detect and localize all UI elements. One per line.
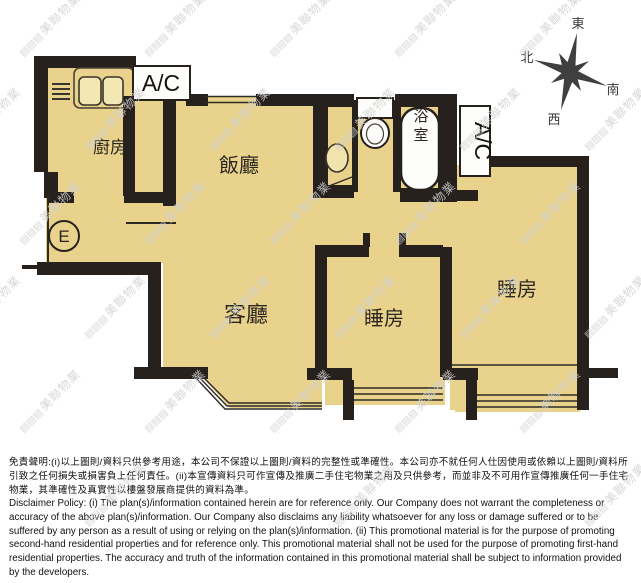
dining-room-label: 飯廳 — [219, 154, 259, 177]
compass-star — [534, 33, 607, 110]
compass-rose: 東 北 南 西 — [520, 16, 619, 127]
disclaimer-english: Disclaimer Policy: (i) The plan(s)/infor… — [9, 497, 633, 579]
kitchen-label: 廚房 — [93, 137, 127, 157]
flat-letter: E — [58, 227, 69, 246]
stove-burner — [79, 77, 101, 105]
disclaimer-block: 免責聲明:(i)以上圖則/資料只供參考用途，本公司不保證以上圖則/資料的完整性或… — [9, 456, 633, 580]
compass-north-label: 北 — [520, 50, 533, 65]
entrance-door-line — [47, 197, 49, 263]
stove-burner — [103, 77, 123, 105]
bedroom-right-label: 睡房 — [497, 278, 537, 301]
ac-platform-right: A/C — [460, 106, 496, 176]
ac-right-label: A/C — [470, 122, 496, 160]
living-room-label: 客廳 — [224, 302, 268, 327]
toilet-cistern — [357, 98, 393, 118]
ac-top-label: A/C — [142, 70, 180, 96]
ac-platform-top: A/C — [133, 66, 190, 100]
floor-plan-page: A/C A/C 廚房 飯廳 客廳 睡房 睡房 浴室 E — [0, 0, 641, 583]
washbasin — [326, 144, 348, 172]
bedroom-middle-label: 睡房 — [364, 307, 404, 330]
floor-plan-drawing: A/C A/C 廚房 飯廳 客廳 睡房 睡房 浴室 E — [0, 0, 641, 452]
disclaimer-chinese: 免責聲明:(i)以上圖則/資料只供參考用途，本公司不保證以上圖則/資料的完整性或… — [9, 456, 633, 497]
bathroom-label: 浴室 — [412, 108, 429, 146]
compass-south-label: 南 — [606, 82, 619, 97]
compass-east-label: 東 — [571, 16, 584, 31]
compass-west-label: 西 — [547, 112, 560, 127]
closet-door-line — [126, 222, 176, 224]
